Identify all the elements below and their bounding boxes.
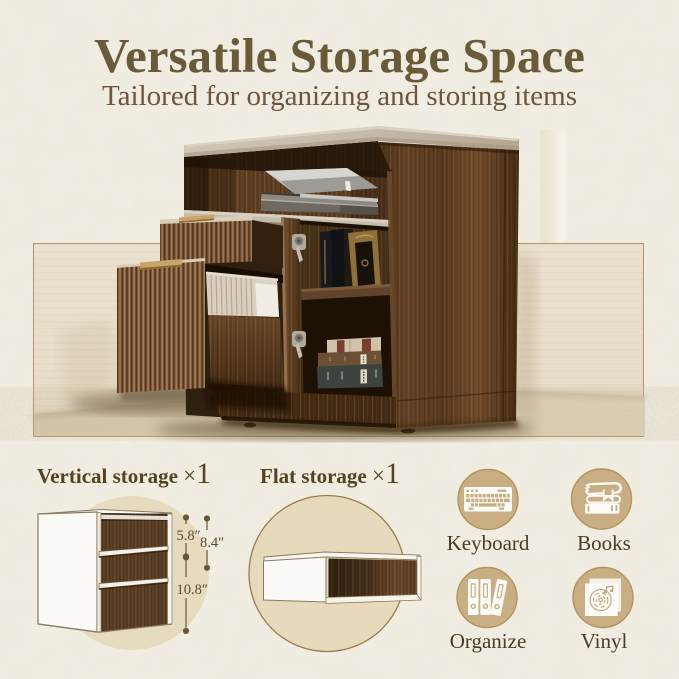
svg-text:8.4″: 8.4″ — [200, 535, 224, 551]
svg-text:10.8″: 10.8″ — [177, 582, 208, 598]
svg-text:5.8″: 5.8″ — [177, 528, 201, 544]
